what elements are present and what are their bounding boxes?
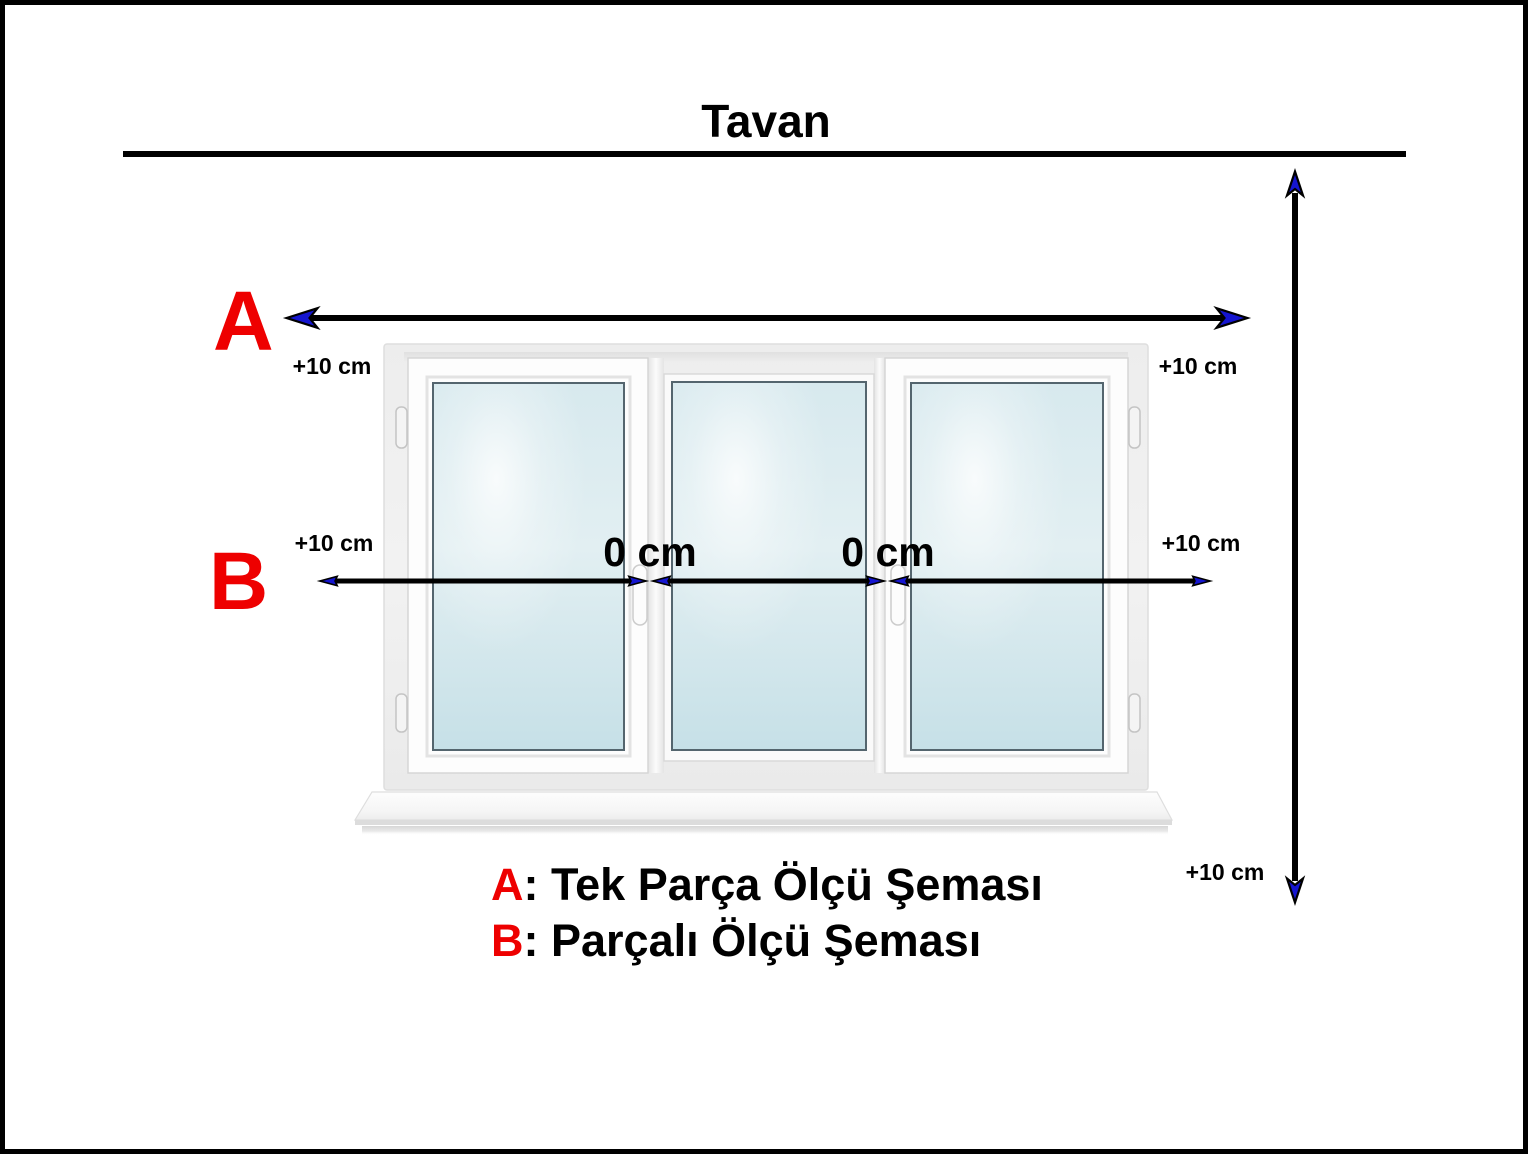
svg-text:+10 cm: +10 cm: [1162, 530, 1241, 556]
svg-text:B: Parçalı Ölçü Şeması: B: Parçalı Ölçü Şeması: [491, 915, 981, 966]
svg-text:+10 cm: +10 cm: [1159, 353, 1238, 379]
svg-text:+10 cm: +10 cm: [293, 353, 372, 379]
svg-text:A: A: [213, 274, 274, 368]
svg-text:+10 cm: +10 cm: [295, 530, 374, 556]
svg-text:+10 cm: +10 cm: [1186, 859, 1265, 885]
svg-text:0 cm: 0 cm: [603, 529, 696, 575]
svg-text:B: B: [209, 536, 268, 627]
svg-text:0 cm: 0 cm: [841, 529, 934, 575]
svg-text:Tavan: Tavan: [701, 95, 831, 147]
svg-text:A: Tek Parça Ölçü Şeması: A: Tek Parça Ölçü Şeması: [491, 859, 1043, 910]
